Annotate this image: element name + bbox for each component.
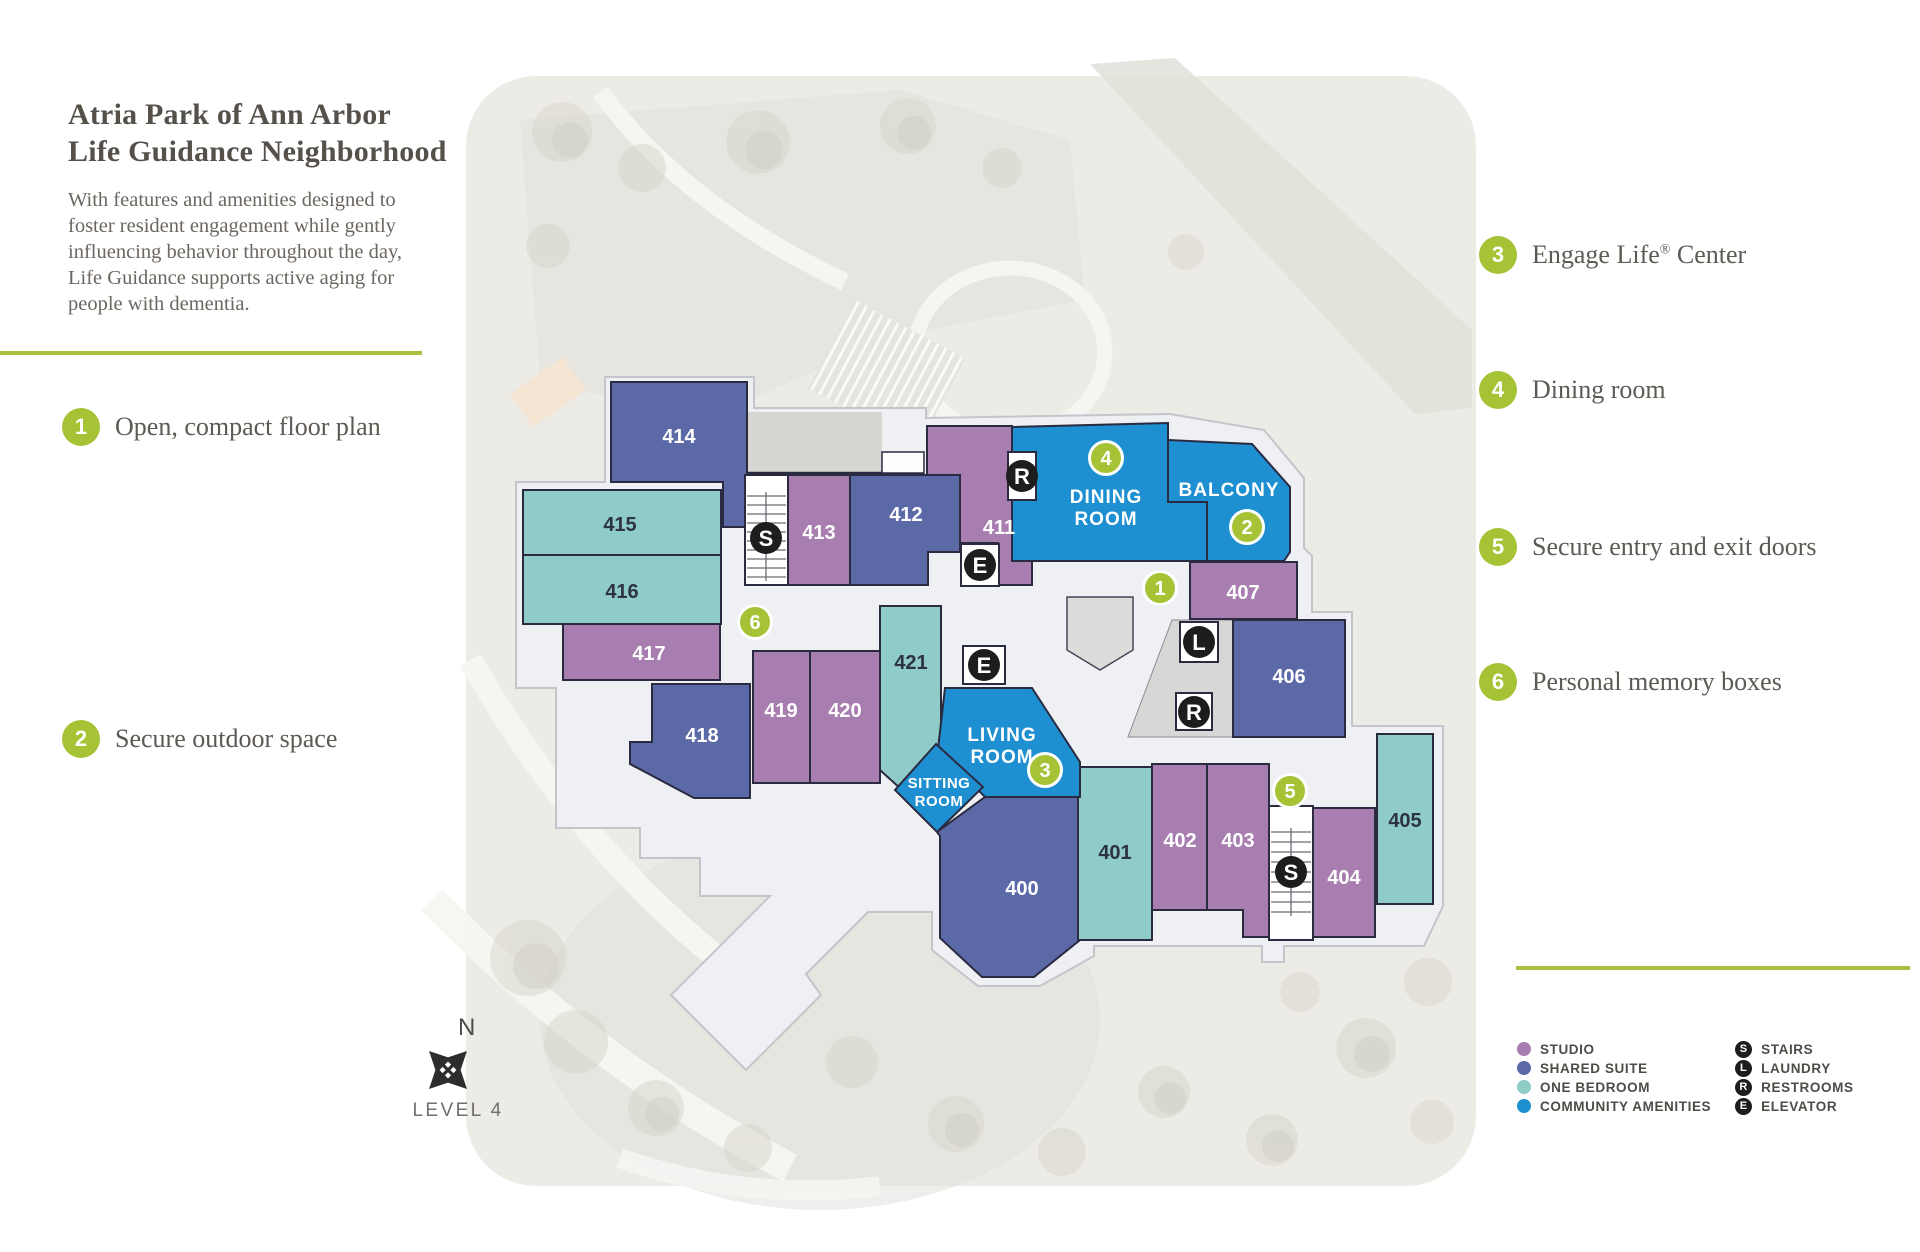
callout-1: 1 Open, compact floor plan	[62, 408, 381, 446]
callout-3: 3 Engage Life® Center	[1479, 236, 1746, 274]
label-dining-1: DINING	[1070, 487, 1143, 508]
legend-label: COMMUNITY AMENITIES	[1540, 1099, 1711, 1114]
plan-badge-3: 3	[1029, 754, 1062, 787]
divider-left	[0, 351, 422, 355]
svg-text:L: L	[1192, 630, 1205, 655]
legend-label: ELEVATOR	[1761, 1099, 1837, 1114]
label-411: 411	[983, 517, 1015, 539]
callout-1-badge: 1	[62, 408, 100, 446]
label-412: 412	[889, 504, 922, 526]
label-402: 402	[1163, 830, 1196, 852]
callout-2-label: Secure outdoor space	[115, 724, 337, 754]
legend: STUDIO SHARED SUITE ONE BEDROOM COMMUNIT…	[1517, 1042, 1854, 1113]
plan-badge-4: 4	[1090, 442, 1123, 475]
plan-badge-2: 2	[1231, 511, 1264, 544]
restrooms-icon-north: R	[1006, 460, 1038, 492]
label-403: 403	[1221, 830, 1254, 852]
legend-label: RESTROOMS	[1761, 1080, 1853, 1095]
callout-3-label-after: Center	[1670, 240, 1746, 269]
callout-5-badge: 5	[1479, 528, 1517, 566]
svg-text:E: E	[973, 553, 988, 578]
label-416: 416	[605, 581, 638, 603]
callout-6-badge: 6	[1479, 663, 1517, 701]
callout-4: 4 Dining room	[1479, 371, 1666, 409]
page-title-line-1: Atria Park of Ann Arbor	[68, 96, 498, 133]
callout-5-label: Secure entry and exit doors	[1532, 532, 1816, 562]
callout-1-label: Open, compact floor plan	[115, 412, 381, 442]
stairs-icon-east: S	[1275, 856, 1307, 888]
callout-4-badge: 4	[1479, 371, 1517, 409]
svg-text:R: R	[1014, 464, 1030, 489]
page: S S E E R R L 414 417 418 419 420 413 41…	[0, 0, 1920, 1252]
page-title-line-2: Life Guidance Neighborhood	[68, 133, 498, 170]
svg-text:R: R	[1186, 700, 1202, 725]
svg-text:2: 2	[1241, 517, 1252, 539]
label-404: 404	[1327, 867, 1361, 889]
callout-6: 6 Personal memory boxes	[1479, 663, 1782, 701]
plan-badge-6: 6	[739, 606, 772, 639]
laundry-icon: L	[1183, 626, 1215, 658]
label-405: 405	[1388, 810, 1421, 832]
stairs-icon-west: S	[750, 522, 782, 554]
label-415: 415	[603, 514, 636, 536]
legend-label: SHARED SUITE	[1540, 1061, 1648, 1076]
legend-item-elevator: E ELEVATOR	[1735, 1099, 1853, 1113]
legend-label: STAIRS	[1761, 1042, 1813, 1057]
legend-item-community-amenities: COMMUNITY AMENITIES	[1517, 1099, 1711, 1113]
label-407: 407	[1226, 582, 1259, 604]
svg-text:5: 5	[1284, 781, 1295, 803]
community-amenities-dot-icon	[1517, 1099, 1531, 1113]
label-sitting-2: ROOM	[915, 793, 964, 810]
restrooms-icon: R	[1735, 1079, 1752, 1096]
callout-2-badge: 2	[62, 720, 100, 758]
legend-label: STUDIO	[1540, 1042, 1595, 1057]
label-dining-2: ROOM	[1074, 509, 1137, 530]
label-420: 420	[828, 700, 861, 722]
legend-item-stairs: S STAIRS	[1735, 1042, 1853, 1056]
svg-text:3: 3	[1039, 760, 1050, 782]
elevator-icon: E	[1735, 1098, 1752, 1115]
callout-5: 5 Secure entry and exit doors	[1479, 528, 1816, 566]
legend-item-one-bedroom: ONE BEDROOM	[1517, 1080, 1711, 1094]
label-414: 414	[662, 426, 696, 448]
callout-4-label: Dining room	[1532, 375, 1666, 405]
compass-north-label: N	[458, 1014, 475, 1042]
elevator-icon-north: E	[964, 549, 996, 581]
label-401: 401	[1098, 842, 1131, 864]
svg-text:1: 1	[1154, 578, 1165, 600]
callout-3-label: Engage Life® Center	[1532, 240, 1746, 270]
restrooms-icon-south: R	[1178, 696, 1210, 728]
laundry-icon: L	[1735, 1060, 1752, 1077]
callout-6-label: Personal memory boxes	[1532, 667, 1782, 697]
plan-badge-1: 1	[1144, 572, 1177, 605]
studio-dot-icon	[1517, 1042, 1531, 1056]
legend-item-laundry: L LAUNDRY	[1735, 1061, 1853, 1075]
divider-right	[1516, 966, 1910, 970]
label-417: 417	[632, 643, 665, 665]
svg-text:E: E	[977, 653, 992, 678]
label-living-2: ROOM	[970, 747, 1033, 768]
svg-text:S: S	[1284, 860, 1299, 885]
svg-text:4: 4	[1100, 448, 1112, 470]
label-418: 418	[685, 725, 718, 747]
svg-text:S: S	[759, 526, 774, 551]
label-balcony: BALCONY	[1179, 480, 1280, 501]
label-living-1: LIVING	[967, 725, 1036, 746]
compass-rose-icon	[420, 1042, 476, 1098]
callout-3-label-text: Engage Life	[1532, 240, 1660, 269]
callout-2: 2 Secure outdoor space	[62, 720, 337, 758]
title-block: Atria Park of Ann Arbor Life Guidance Ne…	[68, 96, 498, 317]
label-406: 406	[1272, 666, 1305, 688]
label-400: 400	[1005, 878, 1038, 900]
label-sitting-1: SITTING	[908, 775, 971, 792]
callout-3-label-sup: ®	[1660, 242, 1671, 257]
plan-badge-5: 5	[1274, 775, 1307, 808]
legend-room-types: STUDIO SHARED SUITE ONE BEDROOM COMMUNIT…	[1517, 1042, 1711, 1113]
legend-label: LAUNDRY	[1761, 1061, 1831, 1076]
stairs-icon: S	[1735, 1041, 1752, 1058]
legend-item-shared-suite: SHARED SUITE	[1517, 1061, 1711, 1075]
level-label: LEVEL 4	[398, 1100, 518, 1122]
shared-suite-dot-icon	[1517, 1061, 1531, 1075]
svg-text:6: 6	[749, 612, 760, 634]
label-421: 421	[894, 652, 927, 674]
elevator-icon-south: E	[968, 649, 1000, 681]
legend-plan-icons: S STAIRS L LAUNDRY R RESTROOMS E ELEVATO…	[1735, 1042, 1853, 1113]
label-419: 419	[764, 700, 797, 722]
legend-item-restrooms: R RESTROOMS	[1735, 1080, 1853, 1094]
legend-label: ONE BEDROOM	[1540, 1080, 1650, 1095]
page-description: With features and amenities designed to …	[68, 187, 424, 317]
one-bedroom-dot-icon	[1517, 1080, 1531, 1094]
legend-item-studio: STUDIO	[1517, 1042, 1711, 1056]
label-413: 413	[802, 522, 835, 544]
callout-3-badge: 3	[1479, 236, 1517, 274]
